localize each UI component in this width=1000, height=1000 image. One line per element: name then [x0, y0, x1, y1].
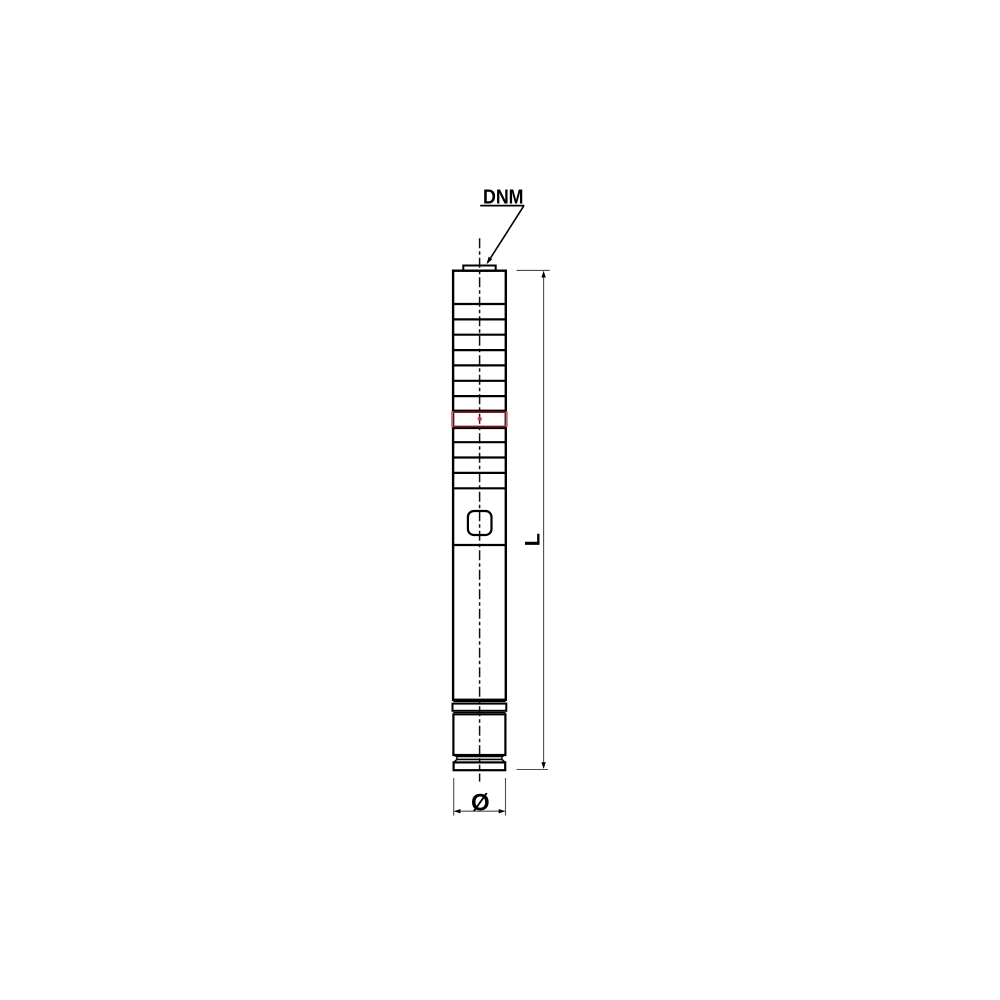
svg-text:L: L	[520, 533, 544, 546]
svg-text:Ø: Ø	[471, 790, 490, 817]
